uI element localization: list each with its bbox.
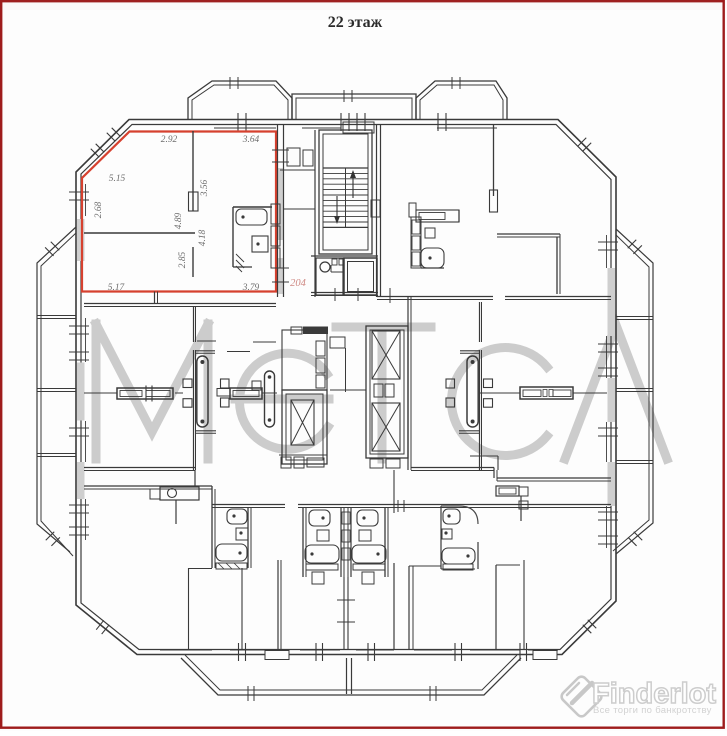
svg-text:Все торги по банкротству: Все торги по банкротству <box>593 705 712 716</box>
svg-text:4.89: 4.89 <box>174 212 184 229</box>
svg-text:204: 204 <box>290 278 307 289</box>
svg-text:5.15: 5.15 <box>109 174 126 184</box>
svg-text:3.64: 3.64 <box>242 135 260 145</box>
svg-text:2.92: 2.92 <box>161 135 178 145</box>
svg-text:3.79: 3.79 <box>242 283 260 293</box>
svg-text:3.56: 3.56 <box>200 179 210 197</box>
svg-text:2.85: 2.85 <box>178 251 188 268</box>
svg-text:22 этаж: 22 этаж <box>328 14 383 31</box>
svg-text:2.68: 2.68 <box>94 201 104 218</box>
svg-text:5.17: 5.17 <box>108 283 126 293</box>
svg-text:4.18: 4.18 <box>198 229 208 246</box>
